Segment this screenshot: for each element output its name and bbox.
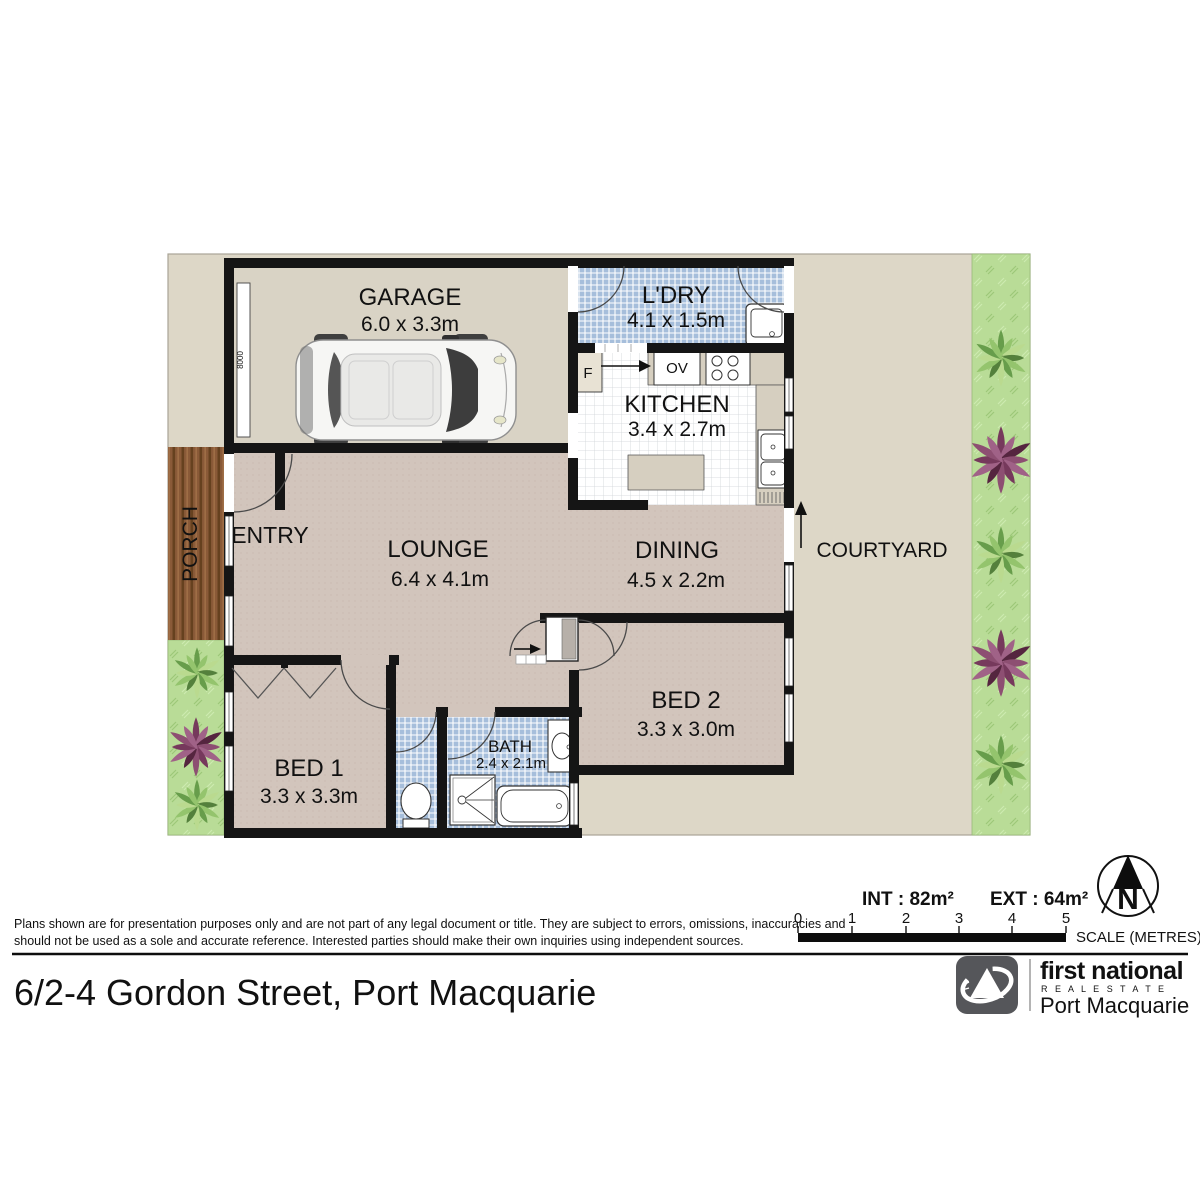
scale-tick-2: 2 — [902, 910, 910, 927]
label-bath: BATH — [488, 737, 532, 756]
floor-plan-page: OV F — [0, 0, 1200, 1200]
area-external: EXT : 64m² — [990, 889, 1088, 910]
dims-kitchen: 3.4 x 2.7m — [628, 418, 726, 441]
oven-label: OV — [666, 360, 688, 377]
compass-label: N — [1117, 883, 1139, 916]
label-lounge: LOUNGE — [387, 536, 488, 563]
dims-bed2: 3.3 x 3.0m — [637, 718, 735, 741]
dims-laundry: 4.1 x 1.5m — [627, 309, 725, 332]
scale-tick-0: 0 — [794, 910, 802, 927]
compass: N — [1098, 855, 1158, 916]
scale-tick-1: 1 — [848, 910, 856, 927]
address-title: 6/2-4 Gordon Street, Port Macquarie — [14, 972, 596, 1013]
scale-label: SCALE (METRES) — [1076, 929, 1200, 946]
dims-bath: 2.4 x 2.1m — [476, 755, 546, 772]
label-courtyard: COURTYARD — [816, 539, 947, 562]
logo-office: Port Macquarie — [1040, 993, 1189, 1018]
area-internal: INT : 82m² — [862, 889, 954, 910]
dims-bed1: 3.3 x 3.3m — [260, 785, 358, 808]
logo-brand: first national — [1040, 957, 1183, 985]
label-bed2: BED 2 — [651, 687, 720, 714]
disclaimer-line1: Plans shown are for presentation purpose… — [14, 917, 846, 931]
fridge-label: F — [583, 365, 592, 382]
label-entry: ENTRY — [231, 522, 309, 548]
floor-plan: OV F — [0, 0, 1200, 1200]
scale-tick-5: 5 — [1062, 910, 1070, 927]
label-porch: PORCH — [179, 506, 202, 582]
agency-logo: first national R E A L E S T A T E Port … — [956, 956, 1189, 1018]
label-kitchen: KITCHEN — [624, 391, 729, 418]
dims-garage: 6.0 x 3.3m — [361, 313, 459, 336]
footer: Plans shown are for presentation purpose… — [12, 855, 1200, 1018]
garage-door-label: 8000 — [236, 351, 245, 369]
dishwasher-rack — [760, 492, 784, 503]
dims-lounge: 6.4 x 4.1m — [391, 568, 489, 591]
disclaimer-line2: should not be used as a sole and accurat… — [14, 934, 744, 948]
bench-peninsula — [628, 455, 704, 490]
bathtub — [497, 786, 572, 826]
scale-tick-3: 3 — [955, 910, 963, 927]
toilet — [401, 783, 431, 819]
label-bed1: BED 1 — [274, 755, 343, 782]
scale-bar: 0 1 2 3 4 5 SCALE (METRES) — [794, 910, 1200, 946]
garage-door: 8000 — [236, 283, 250, 437]
dims-dining: 4.5 x 2.2m — [627, 569, 725, 592]
label-laundry: L'DRY — [642, 282, 710, 309]
label-dining: DINING — [635, 537, 719, 564]
linen-cupboard — [546, 617, 578, 661]
scale-tick-4: 4 — [1008, 910, 1016, 927]
car — [296, 334, 516, 446]
cooktop — [706, 352, 750, 385]
label-garage: GARAGE — [359, 284, 462, 311]
